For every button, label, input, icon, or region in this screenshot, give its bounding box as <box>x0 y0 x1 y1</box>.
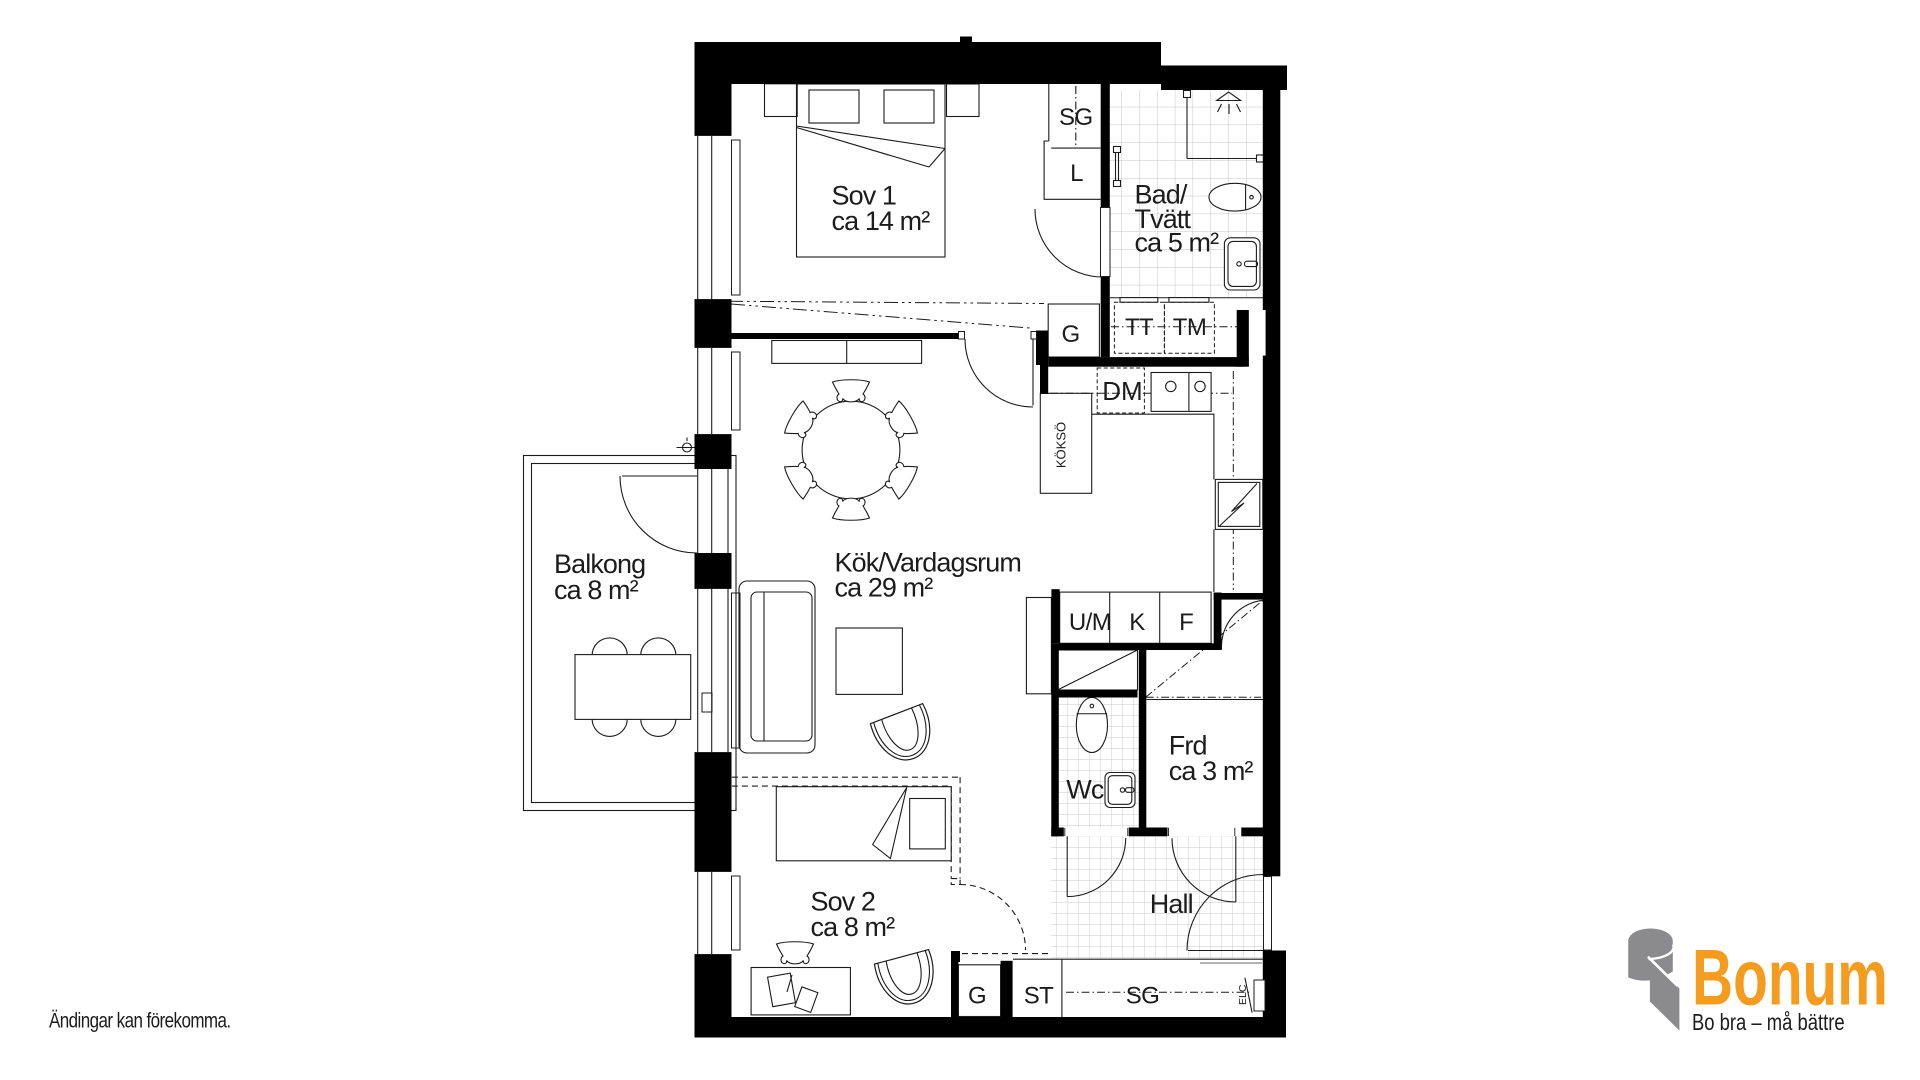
svg-text:L: L <box>1070 160 1083 187</box>
svg-text:G: G <box>1061 321 1079 348</box>
svg-text:DM: DM <box>1102 376 1142 406</box>
svg-text:ELC: ELC <box>1237 984 1249 1005</box>
svg-text:Bonum: Bonum <box>1692 933 1888 1021</box>
svg-text:ca 14 m²: ca 14 m² <box>832 206 931 236</box>
svg-text:SG: SG <box>1126 983 1159 1010</box>
svg-text:Hall: Hall <box>1150 889 1193 919</box>
svg-text:TM: TM <box>1173 314 1206 341</box>
svg-text:ca 5 m²: ca 5 m² <box>1135 228 1220 258</box>
svg-text:ca 8 m²: ca 8 m² <box>554 575 639 605</box>
svg-text:K: K <box>1129 609 1145 636</box>
svg-text:U/M: U/M <box>1069 609 1111 636</box>
svg-text:F: F <box>1179 609 1193 636</box>
svg-text:ca 3 m²: ca 3 m² <box>1169 756 1254 786</box>
svg-text:SG: SG <box>1059 104 1092 131</box>
svg-text:TT: TT <box>1125 314 1154 341</box>
svg-text:Ändingar kan förekomma.: Ändingar kan förekomma. <box>49 1010 231 1033</box>
svg-text:G: G <box>968 983 986 1010</box>
svg-text:ST: ST <box>1024 983 1054 1010</box>
svg-text:ca 29 m²: ca 29 m² <box>835 573 934 603</box>
svg-text:Wc: Wc <box>1066 775 1104 805</box>
svg-text:ca 8 m²: ca 8 m² <box>811 912 896 942</box>
svg-text:KÖKSÖ: KÖKSÖ <box>1054 422 1069 468</box>
svg-text:Bo bra – må bättre: Bo bra – må bättre <box>1692 1010 1845 1036</box>
